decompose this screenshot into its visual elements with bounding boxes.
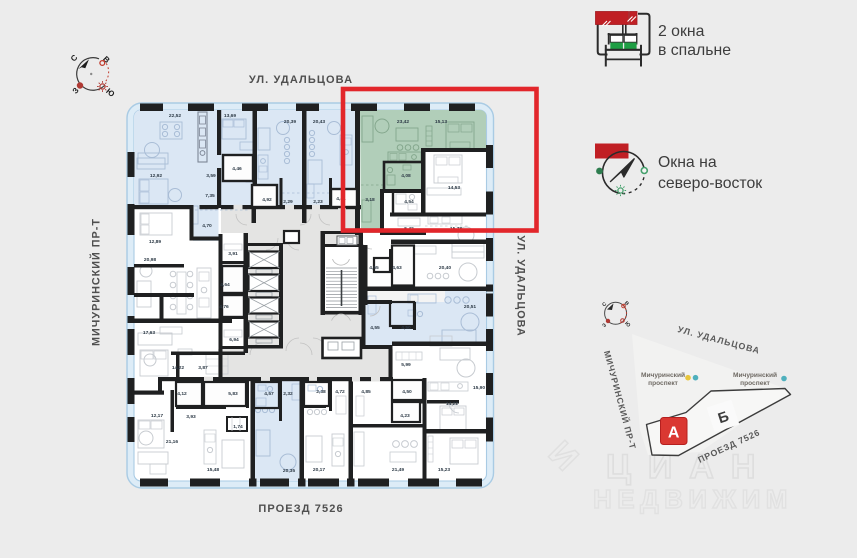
svg-text:15,23: 15,23	[438, 467, 451, 473]
svg-text:3,87: 3,87	[198, 365, 208, 371]
svg-text:15,90: 15,90	[473, 385, 486, 391]
svg-text:21,49: 21,49	[392, 467, 405, 473]
svg-text:3,18: 3,18	[365, 197, 375, 203]
svg-text:А: А	[668, 425, 680, 442]
svg-text:4,50: 4,50	[401, 325, 411, 331]
svg-text:5,83: 5,83	[228, 391, 238, 397]
svg-text:4,55: 4,55	[369, 265, 379, 271]
svg-text:20,17: 20,17	[313, 467, 326, 473]
svg-text:14,53: 14,53	[448, 185, 461, 191]
svg-text:17,63: 17,63	[143, 330, 156, 336]
svg-text:4,63: 4,63	[392, 265, 402, 271]
svg-text:5,99: 5,99	[401, 362, 411, 368]
svg-text:4,54: 4,54	[404, 199, 414, 205]
svg-text:13,69: 13,69	[224, 113, 237, 119]
svg-text:20,35: 20,35	[283, 468, 296, 474]
svg-text:4,70: 4,70	[202, 223, 212, 229]
svg-text:21,16: 21,16	[166, 439, 179, 445]
svg-text:12,92: 12,92	[150, 173, 163, 179]
svg-text:14,22: 14,22	[172, 365, 185, 371]
svg-text:14,22: 14,22	[446, 401, 459, 407]
svg-text:4,55: 4,55	[370, 325, 380, 331]
svg-text:1,74: 1,74	[233, 424, 243, 430]
svg-text:северо-восток: северо-восток	[658, 175, 762, 192]
svg-text:20,39: 20,39	[284, 119, 297, 125]
svg-text:2,32: 2,32	[283, 391, 293, 397]
svg-text:12,89: 12,89	[149, 239, 162, 245]
svg-text:3,93: 3,93	[186, 414, 196, 420]
svg-text:4,85: 4,85	[361, 389, 371, 395]
svg-text:20,98: 20,98	[144, 257, 157, 263]
svg-text:20,43: 20,43	[313, 119, 326, 125]
svg-text:УЛ. УДАЛЬЦОВА: УЛ. УДАЛЬЦОВА	[249, 74, 353, 86]
svg-text:15,48: 15,48	[207, 467, 220, 473]
svg-text:12,17: 12,17	[151, 413, 164, 419]
svg-text:Мичуринский: Мичуринский	[641, 371, 685, 379]
svg-text:2,38: 2,38	[316, 389, 326, 395]
svg-text:23,42: 23,42	[397, 119, 410, 125]
svg-text:в спальне: в спальне	[658, 42, 731, 59]
svg-text:3,59: 3,59	[206, 173, 216, 179]
svg-text:Окна на: Окна на	[658, 154, 717, 171]
svg-text:4,57: 4,57	[264, 391, 274, 397]
svg-text:4,50: 4,50	[402, 389, 412, 395]
svg-text:3,91: 3,91	[228, 251, 238, 257]
svg-text:Мичуринский: Мичуринский	[733, 371, 777, 379]
svg-text:УЛ. УДАЛЬЦОВА: УЛ. УДАЛЬЦОВА	[515, 235, 527, 336]
svg-text:4,76: 4,76	[219, 304, 229, 310]
svg-text:20,51: 20,51	[464, 304, 477, 310]
svg-text:2,23: 2,23	[313, 199, 323, 205]
svg-text:4,72: 4,72	[335, 389, 345, 395]
svg-text:7,35: 7,35	[205, 193, 215, 199]
svg-text:2,29: 2,29	[283, 199, 293, 205]
svg-text:4,08: 4,08	[401, 173, 411, 179]
svg-text:4,46: 4,46	[232, 166, 242, 172]
svg-text:4,23: 4,23	[400, 413, 410, 419]
svg-text:НЕДВИЖИМ: НЕДВИЖИМ	[593, 484, 793, 514]
svg-text:проспект: проспект	[740, 380, 771, 387]
svg-text:4,92: 4,92	[262, 197, 272, 203]
svg-text:2 окна: 2 окна	[658, 23, 705, 40]
svg-text:22,52: 22,52	[169, 113, 182, 119]
svg-text:МИЧУРИНСКИЙ ПР-Т: МИЧУРИНСКИЙ ПР-Т	[90, 218, 103, 346]
svg-text:проспект: проспект	[648, 380, 679, 387]
svg-text:20,40: 20,40	[439, 265, 452, 271]
svg-text:4,12: 4,12	[177, 391, 187, 397]
svg-text:15,13: 15,13	[435, 119, 448, 125]
svg-text:4,64: 4,64	[220, 282, 230, 288]
svg-text:ПРОЕЗД 7526: ПРОЕЗД 7526	[258, 503, 343, 515]
svg-text:ЦИАН: ЦИАН	[606, 448, 772, 486]
svg-text:6,94: 6,94	[229, 337, 239, 343]
